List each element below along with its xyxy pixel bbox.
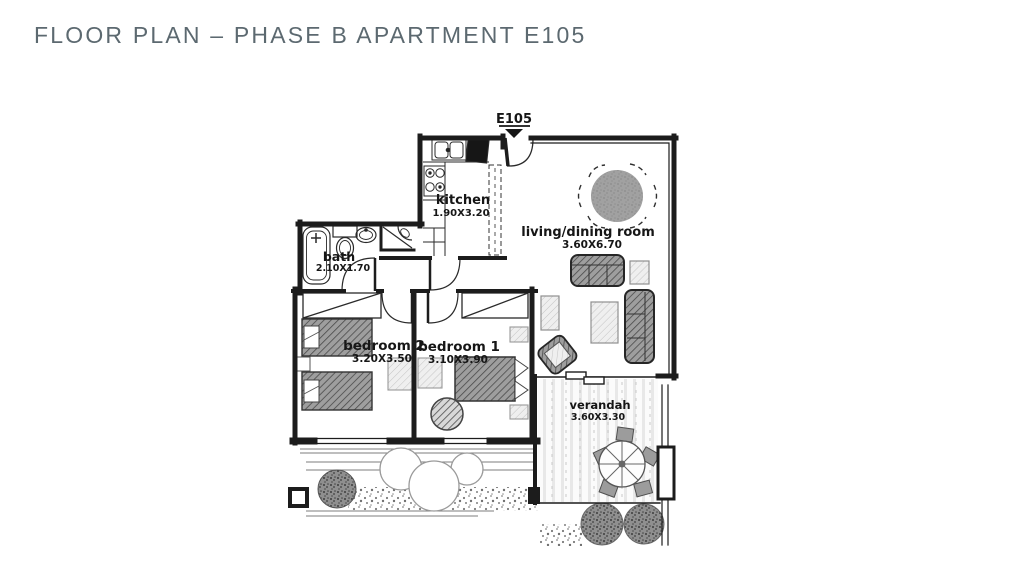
verandah-corner-post [528, 487, 540, 504]
sliding-door-panel [584, 377, 604, 384]
nightstand [297, 357, 310, 371]
kitchen-dims: 1.90X3.20 [432, 208, 489, 219]
verandah-post [658, 447, 674, 499]
coffee-table [591, 302, 618, 343]
verandah-label: verandah [569, 398, 630, 412]
entrance-arrow-icon [505, 129, 523, 138]
bath-dims: 2.10X1.70 [316, 263, 371, 274]
pillow [515, 381, 528, 399]
pillow [515, 359, 528, 378]
living-label: living/dining room [521, 225, 655, 240]
sliding-door-panel [566, 372, 586, 379]
bedside-table [510, 405, 528, 419]
pillow [304, 380, 319, 402]
verandah-dims: 3.60X3.30 [571, 412, 626, 423]
terrace-edge-lines [300, 449, 536, 453]
living-dims: 3.60X6.70 [562, 239, 622, 251]
living-furniture [536, 164, 657, 376]
armchair [536, 333, 579, 376]
patio-chair [616, 427, 634, 442]
pillow [304, 326, 319, 348]
bedroom2-label: bedroom 2 [343, 338, 425, 354]
entrance-door-arc [507, 139, 533, 166]
bedroom2-dims: 3.20X3.50 [352, 353, 412, 365]
garden-post [290, 489, 307, 506]
corner-basin [398, 226, 412, 240]
bedroom1-dims: 3.10X3.90 [428, 354, 488, 366]
unit-label: E105 [496, 112, 532, 127]
kitchen-label: kitchen [436, 193, 490, 208]
bedside-table [510, 327, 528, 342]
bush-outline [409, 461, 459, 511]
side-table [630, 261, 649, 284]
toilet [333, 226, 357, 237]
dark-bush [581, 503, 623, 545]
kitchen-appliance [466, 138, 489, 163]
planter-edge-lines [306, 511, 494, 516]
sofa [571, 255, 624, 286]
bath-label: bath [323, 249, 355, 264]
shrub-patch [540, 524, 582, 546]
bedroom1-label: bedroom 1 [418, 339, 500, 355]
tv-stand [541, 296, 559, 330]
sofa [625, 290, 654, 363]
bath-fixtures [303, 226, 412, 284]
dark-bush [318, 470, 356, 508]
dark-bush [624, 504, 664, 544]
tap-icon [311, 233, 321, 243]
floor-plan-drawing: E105 kitchen 1.90X3.20 living/dining roo… [0, 0, 1024, 577]
round-rug [431, 398, 463, 430]
